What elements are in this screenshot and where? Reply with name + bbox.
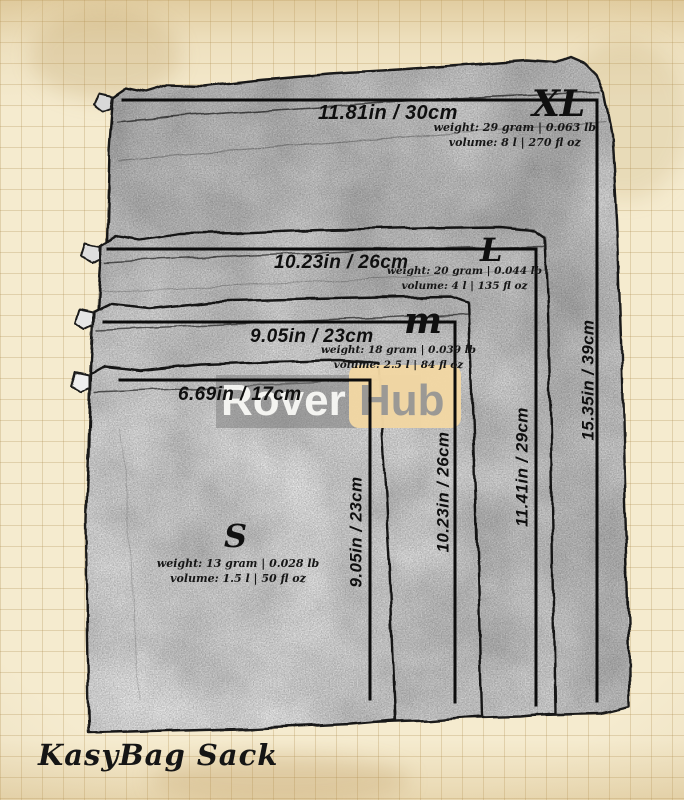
m-height-label: 10.23in / 26cm (435, 432, 452, 553)
s-height-label: 9.05in / 23cm (348, 476, 365, 587)
l-volume: volume: 4 l | 135 fl oz (387, 279, 542, 294)
l-specs: weight: 20 gram | 0.044 lb volume: 4 l |… (387, 264, 542, 293)
xl-size-letter: XL (532, 86, 585, 122)
m-volume: volume: 2.5 l | 84 fl oz (321, 358, 476, 373)
s-volume: volume: 1.5 l | 50 fl oz (152, 571, 324, 586)
s-size-letter: S (224, 520, 247, 552)
xl-height-label: 15.35in / 39cm (580, 320, 597, 441)
xl-weight: weight: 29 gram | 0.063 lb (433, 120, 596, 135)
s-width-label: 6.69in / 17cm (178, 385, 302, 404)
s-specs: weight: 13 gram | 0.028 lb volume: 1.5 l… (152, 556, 324, 587)
xl-specs: weight: 29 gram | 0.063 lb volume: 8 l |… (433, 120, 596, 151)
xl-volume: volume: 8 l | 270 fl oz (433, 135, 596, 150)
l-weight: weight: 20 gram | 0.044 lb (387, 264, 542, 279)
size-chart-canvas: Rover Hub 11.81in / 30cm XL weight: 29 g… (0, 0, 684, 800)
watermark-hub-text: Hub (359, 377, 445, 425)
l-size-letter: L (480, 234, 503, 266)
brand-name: KasyBag Sack (38, 738, 278, 773)
m-size-letter: m (404, 303, 442, 339)
m-weight: weight: 18 gram | 0.039 lb (321, 343, 476, 358)
m-specs: weight: 18 gram | 0.039 lb volume: 2.5 l… (321, 343, 476, 372)
l-height-label: 11.41in / 29cm (514, 407, 531, 527)
s-weight: weight: 13 gram | 0.028 lb (152, 556, 324, 571)
